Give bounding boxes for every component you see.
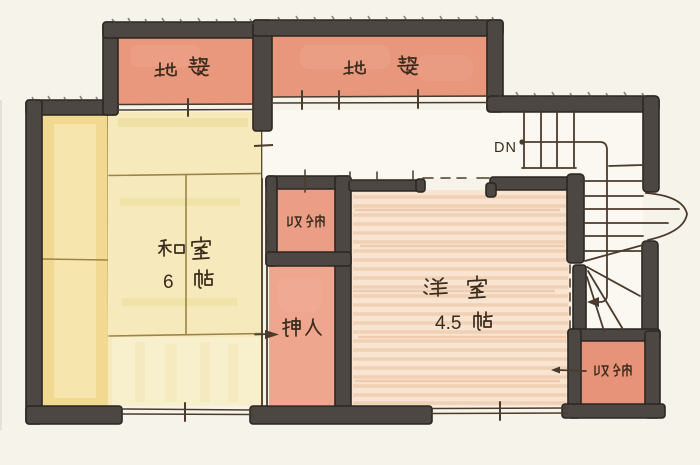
- svg-text:6: 6: [163, 272, 174, 293]
- svg-text:DN: DN: [494, 140, 517, 156]
- svg-text:4.5: 4.5: [435, 313, 461, 334]
